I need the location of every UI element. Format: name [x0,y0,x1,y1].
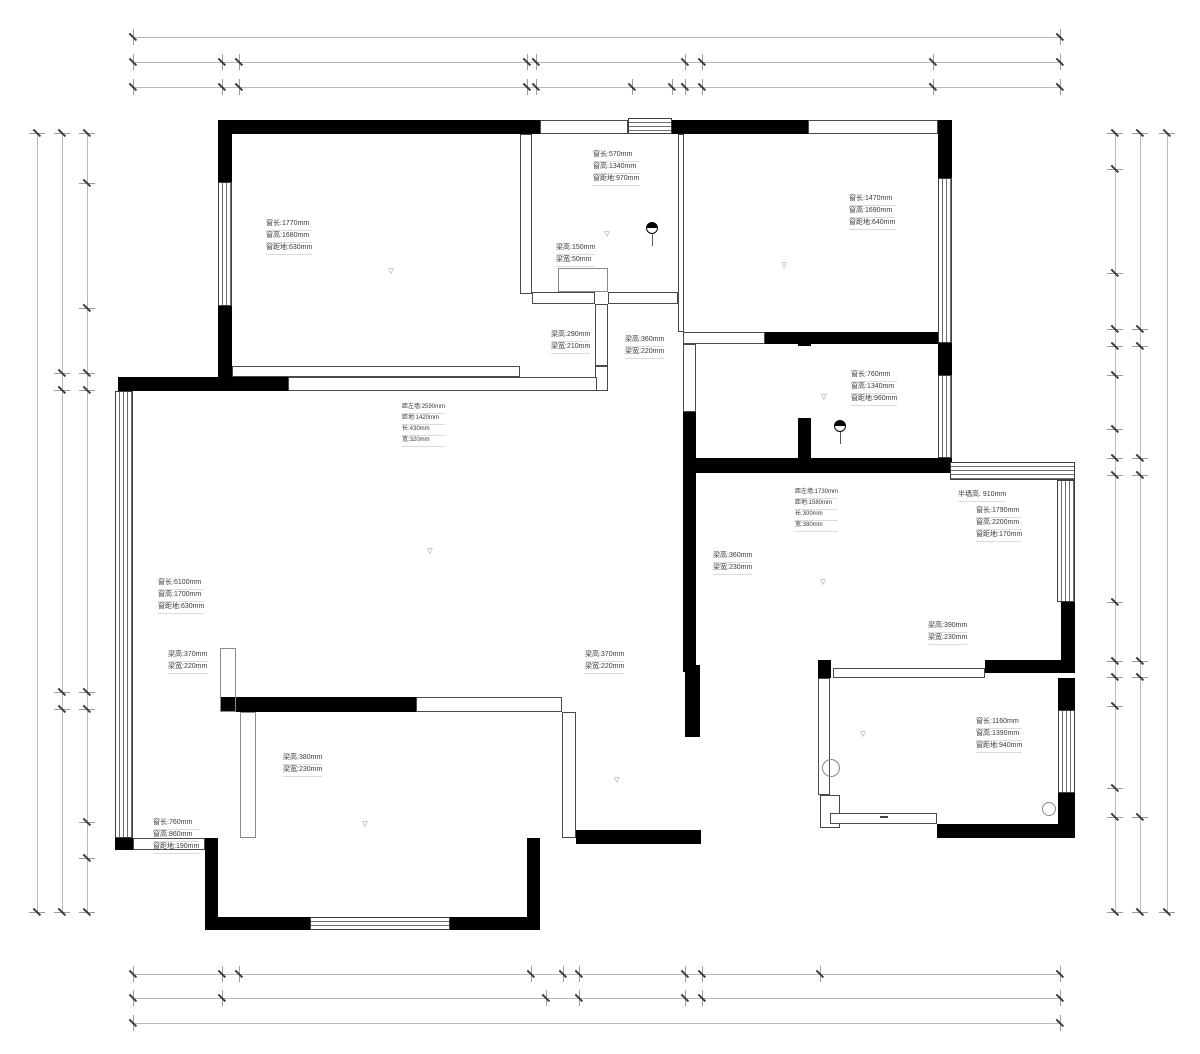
beam-outline [558,268,608,292]
wall-segment [683,412,696,458]
annotation-line: 窗高:1700mm [158,590,204,602]
wall-segment [937,824,1075,838]
annotation-line: 梁宽:50mm [556,255,595,267]
annotation-line: 窗距地:640mm [849,218,895,230]
annotation-block: 距左墙:2590mm距地:1420mm长:430mm宽:320mm [402,403,445,447]
ceiling-fixture-icon [646,222,658,234]
partition-wall [683,344,696,412]
annotation-block: 梁高:360mm梁宽:230mm [713,551,752,575]
partition-wall [818,678,830,795]
duct-circle-icon [822,759,840,777]
partition-wall [232,366,520,377]
annotation-line: 梁高:370mm [585,650,624,662]
annotation-line: 窗距地:630mm [158,602,204,614]
annotation-line: 窗长:760mm [851,370,897,382]
dimension-line [133,37,1060,38]
window-symbol [950,462,1075,480]
wall-segment [576,830,701,844]
ceiling-fixture-icon [834,420,846,432]
annotation-line: 窗长:1770mm [266,219,312,231]
elevation-triangle-icon: ▽ [860,731,865,738]
annotation-line: 距地:1580mm [795,499,838,510]
partition-wall [532,292,595,304]
partition-wall [683,332,765,344]
window-symbol [310,917,450,930]
annotation-block: 窗长:6100mm窗高:1700mm窗距地:630mm [158,578,204,614]
annotation-block: 梁高:370mm梁宽:220mm [168,650,207,674]
window-symbol [115,391,133,838]
wall-segment [527,838,540,930]
partition-wall [540,120,628,134]
dimension-line [133,1023,1060,1024]
annotation-line: 窗高:1680mm [266,231,312,243]
partition-wall [830,813,937,824]
beam-outline [220,648,236,712]
elevation-triangle-icon: ▽ [427,548,432,555]
partition-wall [608,292,678,304]
wall-segment [115,838,133,850]
dimension-line [37,133,38,912]
annotation-line: 窗长:760mm [153,818,199,830]
wall-segment [218,134,232,182]
wall-segment [683,458,938,473]
wall-segment [672,120,808,134]
annotation-block: 窗长:1470mm窗高:1690mm窗距地:640mm [849,194,895,230]
annotation-line: 梁宽:220mm [168,662,207,674]
annotation-line: 梁高:360mm [625,335,664,347]
annotation-line: 梁高:290mm [551,330,590,342]
wall-segment [818,660,831,678]
wall-segment [985,660,1075,673]
annotation-block: 梁高:290mm梁宽:210mm [551,330,590,354]
annotation-line: 窗高:2200mm [976,518,1022,530]
wall-segment [218,120,540,134]
annotation-line: 窗高:1390mm [976,729,1022,741]
partition-wall [416,697,562,712]
annotation-block: 窗长:1770mm窗高:1680mm窗距地:630mm [266,219,312,255]
annotation-block: 半墙高: 910mm [958,490,1006,502]
partition-wall [595,304,608,366]
annotation-block: 窗长:760mm窗高:860mm窗距地:190mm [153,818,199,854]
annotation-block: 窗长:760mm窗高:1340mm窗距地:960mm [851,370,897,406]
annotation-line: 距地:1420mm [402,414,445,425]
annotation-block: 梁高:370mm梁宽:220mm [585,650,624,674]
floor-plan-canvas: 窗长:1770mm窗高:1680mm窗距地:630mm窗长:570mm窗高:13… [0,0,1200,1054]
window-symbol [1058,710,1075,793]
wall-segment [938,343,952,375]
annotation-line: 窗高:1340mm [593,162,639,174]
partition-wall [562,712,576,838]
annotation-line: 窗距地:940mm [976,741,1022,753]
annotation-line: 宽:320mm [402,436,445,447]
annotation-line: 窗长:1790mm [976,506,1022,518]
wall-segment [765,332,938,344]
wall-segment [683,473,696,672]
annotation-line: 窗高:1690mm [849,206,895,218]
partition-wall [678,134,684,332]
window-symbol [938,375,952,458]
annotation-line: 梁高:150mm [556,243,595,255]
elevation-triangle-icon: ▽ [781,262,786,269]
dimension-line [87,133,88,912]
window-symbol [938,178,952,343]
annotation-line: 梁宽:230mm [928,633,967,645]
annotation-block: 梁高:150mm梁宽:50mm [556,243,595,267]
elevation-triangle-icon: ▽ [604,231,609,238]
annotation-block: 梁高:380mm梁宽:230mm [283,753,322,777]
annotation-block: 窗长:1790mm窗高:2200mm窗距地:170mm [976,506,1022,542]
wall-segment [218,917,310,930]
annotation-line: 窗距地:960mm [851,394,897,406]
annotation-line: 梁宽:210mm [551,342,590,354]
beam-outline [240,712,256,838]
annotation-line: 窗长:6100mm [158,578,204,590]
annotation-line: 窗距地:170mm [976,530,1022,542]
annotation-line: 宽:380mm [795,521,838,532]
annotation-line: 长:300mm [795,510,838,521]
annotation-line: 窗距地:970mm [593,174,639,186]
annotation-block: 梁高:360mm梁宽:220mm [625,335,664,359]
elevation-triangle-icon: ▽ [820,579,825,586]
annotation-block: 距左墙:1730mm距地:1580mm长:300mm宽:380mm [795,488,838,532]
annotation-line: 窗高:860mm [153,830,199,842]
wall-segment [220,697,416,712]
annotation-block: 窗长:1160mm窗高:1390mm窗距地:940mm [976,717,1022,753]
wall-segment [938,120,952,178]
fixture-stem-line [840,432,841,444]
annotation-line: 梁高:360mm [713,551,752,563]
annotation-line: 梁高:370mm [168,650,207,662]
window-symbol [218,182,232,306]
annotation-line: 梁宽:220mm [625,347,664,359]
dimension-line [1167,133,1168,912]
dimension-line [133,87,1060,88]
annotation-line: 长:430mm [402,425,445,436]
annotation-line: 窗长:1160mm [976,717,1022,729]
dimension-line [133,974,1060,975]
dimension-line [1140,133,1141,912]
elevation-triangle-icon: ▽ [362,821,367,828]
dimension-line [133,62,1060,63]
annotation-line: 梁宽:230mm [713,563,752,575]
annotation-line: 距左墙:2590mm [402,403,445,414]
partition-wall [808,120,938,134]
window-symbol [1057,480,1075,602]
wall-segment [205,838,218,930]
annotation-line: 窗距地:630mm [266,243,312,255]
annotation-line: 梁宽:230mm [283,765,322,777]
annotation-line: 梁高:390mm [928,621,967,633]
dimension-line [133,998,1060,999]
annotation-line: 窗距地:190mm [153,842,199,854]
annotation-line: 梁高:380mm [283,753,322,765]
partition-wall [520,134,532,294]
annotation-line: 梁宽:220mm [585,662,624,674]
window-symbol [628,118,672,134]
annotation-line: 半墙高: 910mm [958,490,1006,502]
wall-segment [798,332,811,346]
elevation-triangle-icon: ▽ [821,394,826,401]
wall-segment [218,306,232,377]
annotation-line: 距左墙:1730mm [795,488,838,499]
annotation-line: 窗长:570mm [593,150,639,162]
dis-box-label [880,816,888,818]
elevation-triangle-icon: ▽ [388,268,393,275]
dimension-line [62,133,63,912]
wall-segment [798,418,811,458]
wall-segment [1061,602,1075,660]
dimension-line [1115,133,1116,912]
annotation-block: 梁高:390mm梁宽:230mm [928,621,967,645]
partition-wall [288,377,597,391]
annotation-line: 窗高:1340mm [851,382,897,394]
wall-segment [118,377,288,391]
fixture-stem-line [652,234,653,246]
elevation-triangle-icon: ▽ [614,777,619,784]
partition-wall [833,668,985,678]
annotation-line: 窗长:1470mm [849,194,895,206]
annotation-block: 窗长:570mm窗高:1340mm窗距地:970mm [593,150,639,186]
wall-segment [685,665,700,737]
wall-segment [1058,678,1075,710]
duct-circle-icon [1042,802,1056,816]
